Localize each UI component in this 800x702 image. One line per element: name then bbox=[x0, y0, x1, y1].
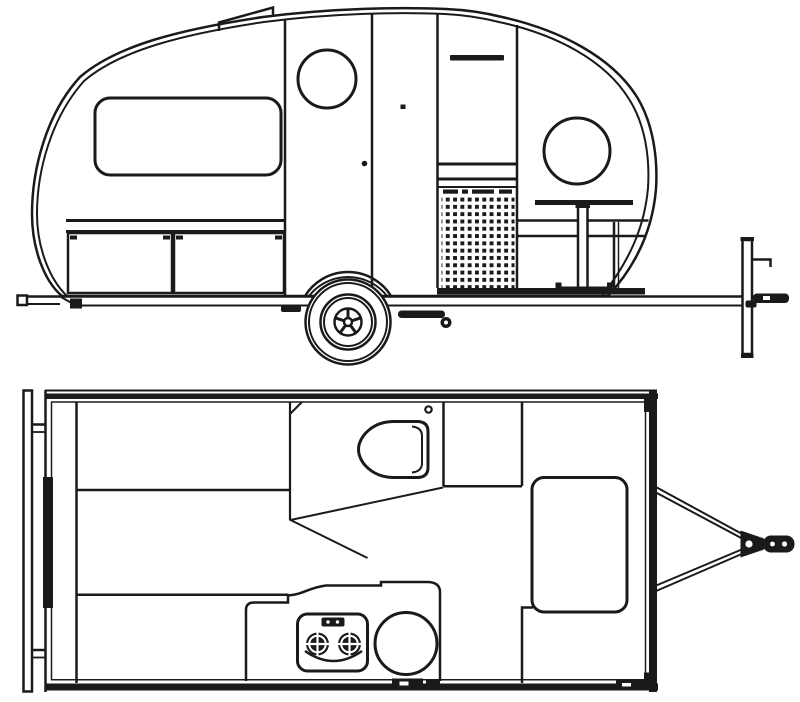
vent-lid-line bbox=[412, 427, 422, 473]
coupler-hole bbox=[782, 541, 787, 546]
storage-box-outline bbox=[532, 478, 627, 613]
vent-outline bbox=[359, 422, 429, 478]
vent-slots bbox=[443, 190, 512, 194]
cabinet-handle bbox=[450, 55, 504, 61]
rail-bracket bbox=[70, 299, 82, 309]
interior-partitions bbox=[77, 402, 523, 683]
coupler-body bbox=[753, 294, 789, 304]
table-top bbox=[535, 200, 633, 205]
tongue-rail-lower bbox=[655, 553, 744, 592]
base-tip-right bbox=[607, 283, 613, 288]
divider-diagonal-upper bbox=[291, 488, 444, 521]
wheel bbox=[306, 280, 391, 365]
front-wall-band bbox=[649, 391, 657, 693]
roof-vent-plan bbox=[359, 406, 432, 477]
top-wall-band bbox=[45, 394, 658, 400]
divider-diagonal-lower bbox=[291, 520, 368, 558]
storage-box-right bbox=[174, 233, 284, 293]
tongue-rail-lower-inner bbox=[655, 549, 744, 587]
pedestal-base bbox=[556, 287, 613, 294]
box-bracket bbox=[176, 236, 183, 240]
tire-outer bbox=[306, 280, 391, 365]
body-profile bbox=[32, 8, 656, 297]
box-bracket bbox=[275, 236, 282, 240]
box-bracket bbox=[163, 236, 170, 240]
tongue-rail-upper bbox=[655, 487, 744, 536]
galley-counter bbox=[246, 582, 440, 681]
hitch-coupler bbox=[763, 536, 795, 553]
jack-handle bbox=[752, 260, 771, 268]
coupler-slot bbox=[763, 296, 770, 300]
coupler-bracket bbox=[746, 301, 757, 308]
bottom-wall-band bbox=[45, 684, 658, 691]
porthole-window-rear bbox=[544, 118, 610, 184]
trailer-drawing bbox=[0, 0, 800, 702]
bumper-tube bbox=[24, 391, 33, 692]
pedestal-collar bbox=[576, 205, 591, 209]
storage-box-plan bbox=[522, 478, 627, 684]
box-bracket bbox=[70, 236, 77, 240]
a-frame-tongue bbox=[655, 487, 795, 592]
rear-bumper bbox=[24, 391, 46, 692]
spring-hanger bbox=[281, 306, 301, 313]
jack-post bbox=[743, 240, 753, 354]
spring-bar bbox=[398, 311, 445, 319]
table-pedestal bbox=[578, 205, 588, 288]
footwell-compartment bbox=[522, 608, 533, 684]
storage-compartments bbox=[66, 221, 285, 294]
jamb-notch bbox=[290, 402, 302, 414]
tongue-rail-upper-inner bbox=[655, 492, 744, 540]
side-elevation-view bbox=[18, 8, 790, 365]
counter-outline bbox=[246, 582, 440, 681]
hatch-hinge-bar bbox=[43, 477, 53, 608]
coupler-hole bbox=[770, 542, 775, 547]
blueprint-canvas bbox=[0, 0, 800, 702]
bracket-hole bbox=[745, 540, 752, 547]
ceiling-light-dot bbox=[425, 406, 431, 412]
door-handle bbox=[362, 161, 368, 167]
base-tip-left bbox=[556, 283, 562, 288]
sink bbox=[375, 613, 437, 675]
stove-knob-panel bbox=[322, 618, 345, 627]
storage-box-left bbox=[68, 233, 172, 293]
stove-knob bbox=[326, 620, 329, 623]
bumper-end-cap bbox=[18, 296, 28, 306]
floor-band bbox=[437, 288, 645, 295]
body-outline-outer bbox=[32, 8, 656, 296]
shackle-hole bbox=[444, 321, 448, 325]
jack-top-cap bbox=[741, 237, 755, 241]
corner-bracket-top bbox=[644, 399, 657, 412]
side-window bbox=[95, 98, 281, 175]
porthole-window-front bbox=[298, 50, 356, 108]
perforated-panel bbox=[442, 198, 515, 289]
stove-knob bbox=[336, 620, 339, 623]
floor-plan-view bbox=[24, 390, 795, 692]
door-latch bbox=[401, 105, 406, 110]
jack-foot bbox=[741, 354, 754, 359]
